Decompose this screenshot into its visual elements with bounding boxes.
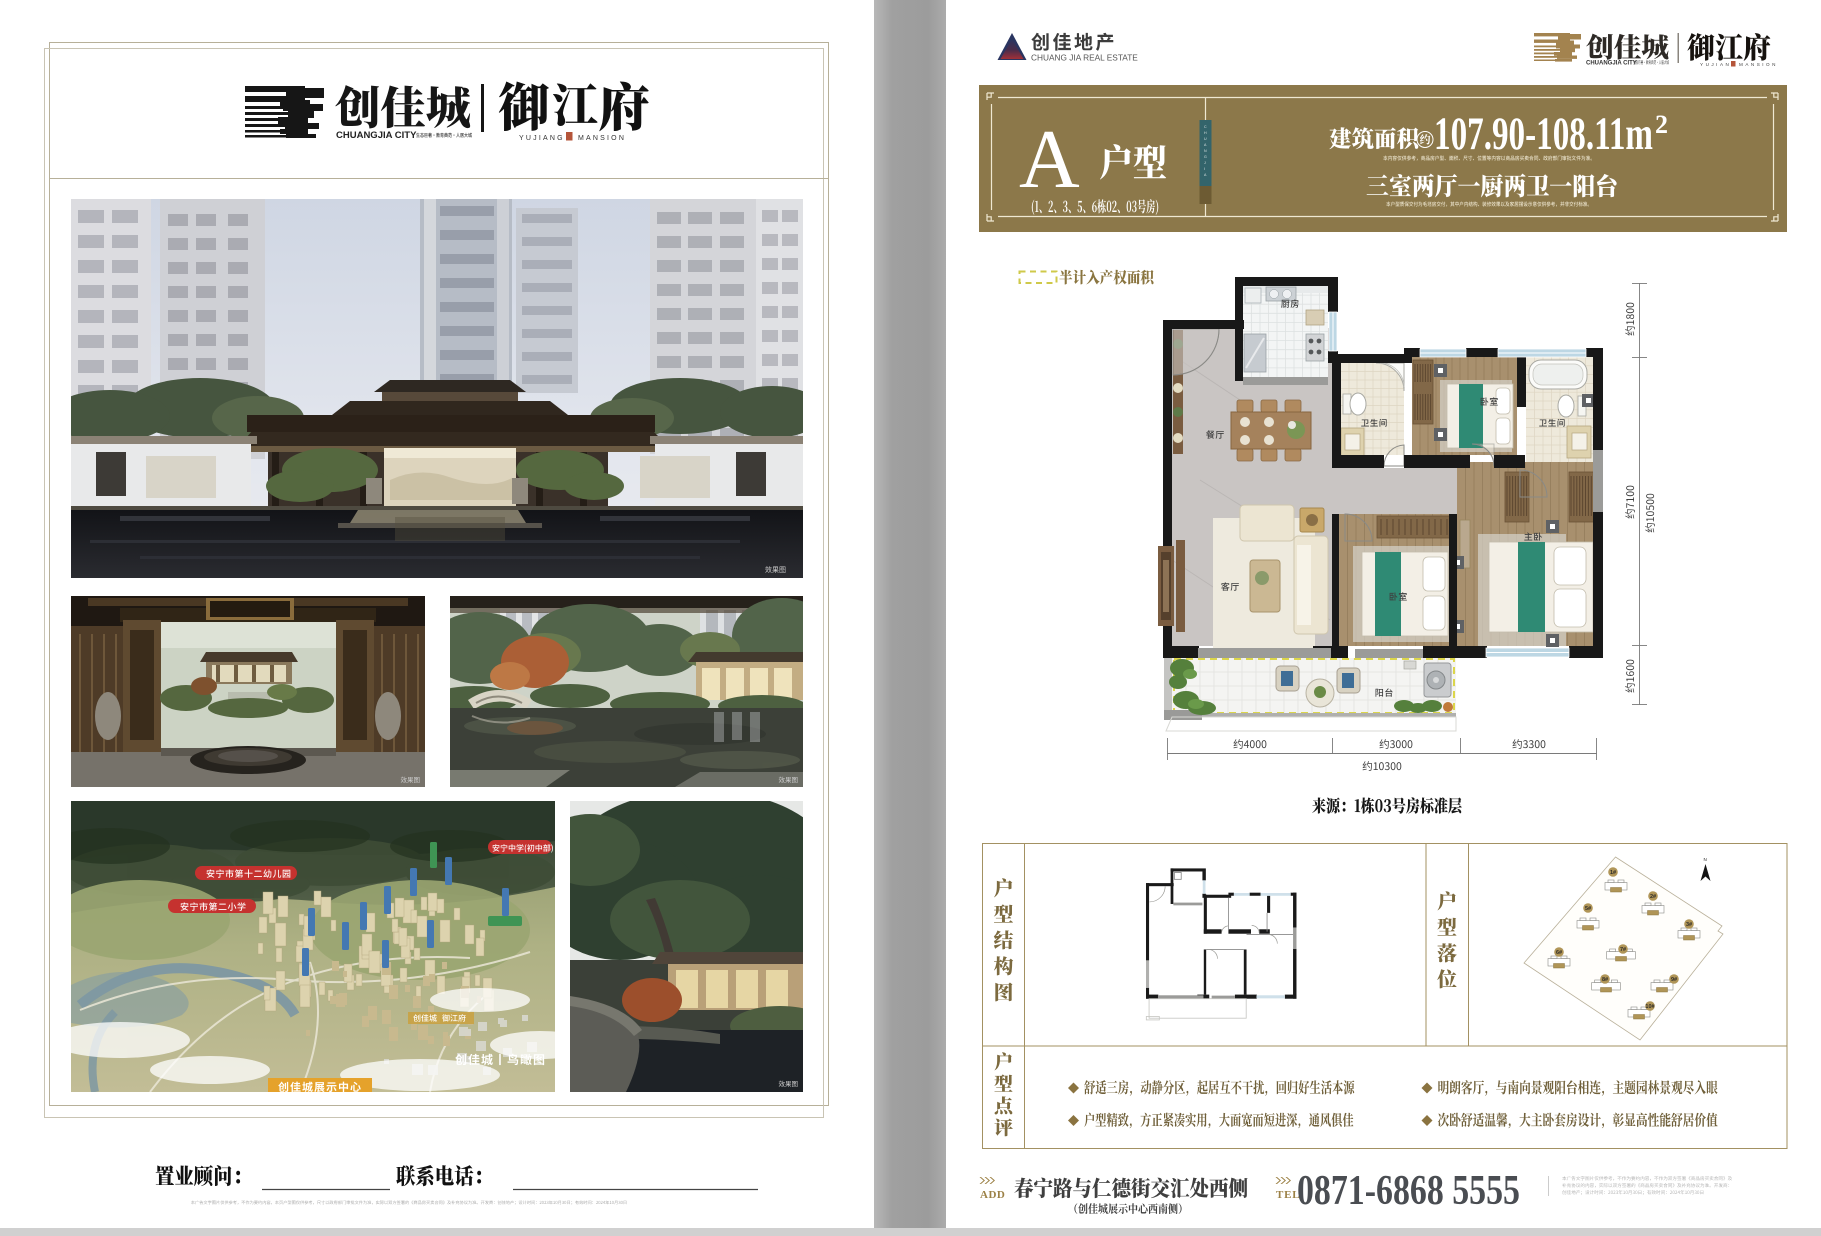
svg-text:10#: 10#	[1645, 1004, 1654, 1010]
svg-text:CHUANG JIA REAL ESTATE: CHUANG JIA REAL ESTATE	[1031, 53, 1138, 63]
svg-text:J: J	[1204, 161, 1206, 165]
svg-text:N: N	[1704, 857, 1707, 862]
svg-text:2#: 2#	[1650, 894, 1656, 900]
svg-text:7#: 7#	[1620, 947, 1626, 953]
svg-text:8#: 8#	[1602, 977, 1608, 983]
svg-text:效果图: 效果图	[765, 565, 786, 574]
svg-text:2: 2	[1655, 110, 1668, 139]
svg-text:CHUANGJIA CITY: CHUANGJIA CITY	[336, 130, 417, 141]
svg-text:107.90-108.11m: 107.90-108.11m	[1434, 108, 1653, 160]
svg-text:U: U	[1204, 137, 1207, 141]
svg-text:G: G	[1204, 155, 1207, 159]
svg-text:效果图: 效果图	[401, 775, 421, 784]
svg-text:效果图: 效果图	[779, 775, 799, 784]
svg-text:3#: 3#	[1686, 922, 1692, 928]
svg-text:0871-6868 5555: 0871-6868 5555	[1297, 1168, 1520, 1214]
svg-text:CHUANGJIA CITY: CHUANGJIA CITY	[1586, 61, 1637, 67]
svg-text:ADD: ADD	[980, 1189, 1005, 1201]
svg-text:1#: 1#	[1610, 870, 1616, 876]
svg-text:A: A	[1019, 113, 1080, 206]
svg-text:效果图: 效果图	[779, 1079, 799, 1088]
svg-text:MANSION: MANSION	[1739, 62, 1778, 67]
svg-text:9#: 9#	[1671, 977, 1677, 983]
svg-text:YUJIANG: YUJIANG	[519, 135, 565, 142]
svg-text:H: H	[1204, 131, 1207, 135]
svg-text:I: I	[1204, 167, 1205, 171]
svg-text:5#: 5#	[1585, 906, 1591, 912]
svg-text:N: N	[1204, 149, 1207, 153]
svg-text:C: C	[1204, 125, 1207, 129]
svg-text:6#: 6#	[1556, 950, 1562, 956]
svg-text:MANSION: MANSION	[578, 135, 626, 142]
